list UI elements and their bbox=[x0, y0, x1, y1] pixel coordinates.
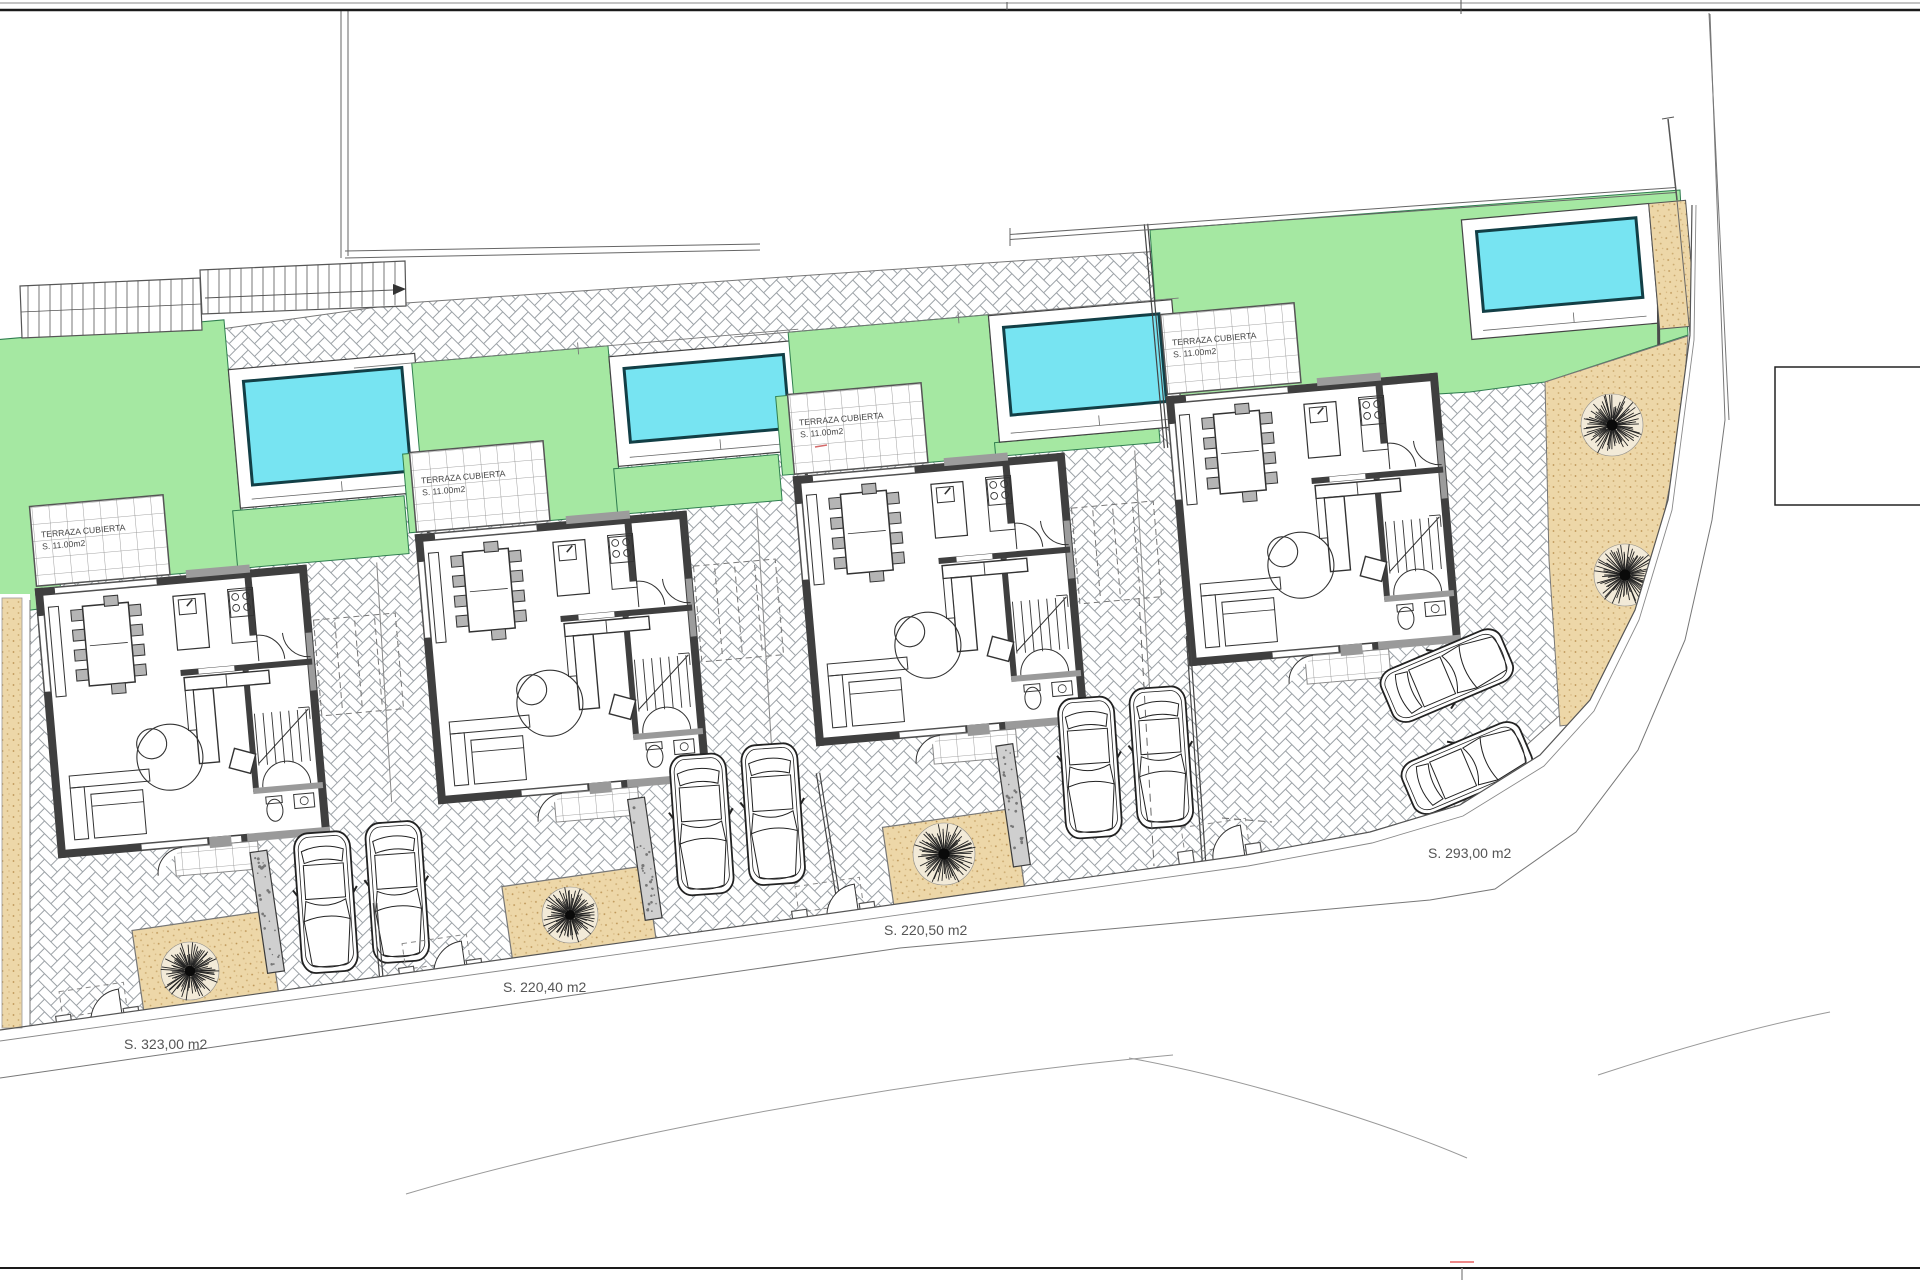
svg-text:S. 323,00 m2: S. 323,00 m2 bbox=[124, 1036, 207, 1052]
svg-text:S. 220,50 m2: S. 220,50 m2 bbox=[884, 922, 967, 938]
svg-text:S. 293,00 m2: S. 293,00 m2 bbox=[1428, 845, 1511, 861]
svg-text:S. 220,40 m2: S. 220,40 m2 bbox=[503, 979, 586, 995]
